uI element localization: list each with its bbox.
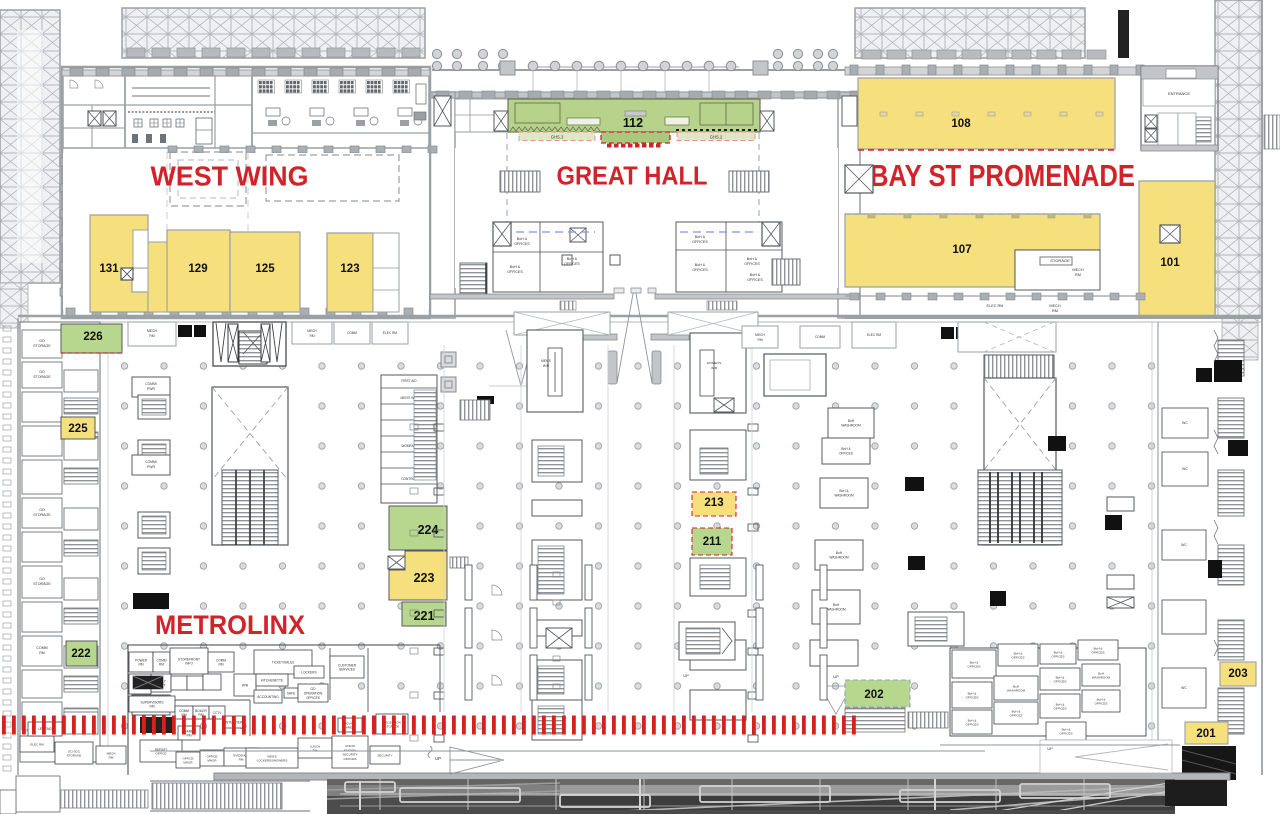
svg-text:LUNCH: LUNCH (310, 744, 320, 748)
svg-text:OFFICES: OFFICES (744, 262, 760, 266)
svg-text:WASHROOM: WASHROOM (841, 424, 861, 428)
svg-text:OFFICES: OFFICES (1091, 651, 1104, 655)
svg-text:WEST WING: WEST WING (151, 161, 309, 192)
svg-text:BoH &: BoH & (695, 263, 706, 267)
svg-text:MECH: MECH (755, 333, 765, 337)
svg-text:202: 202 (864, 689, 883, 701)
svg-text:MECH: MECH (1072, 268, 1083, 272)
svg-text:GREAT HALL: GREAT HALL (557, 162, 708, 190)
svg-text:STORAGE: STORAGE (1050, 258, 1070, 263)
svg-text:BoH &: BoH & (1062, 727, 1071, 731)
svg-text:ELEC RM: ELEC RM (30, 743, 44, 747)
svg-text:W/R: W/R (242, 684, 249, 688)
svg-text:LOCKERS/SHOWERS: LOCKERS/SHOWERS (257, 759, 288, 763)
svg-text:OFFICES: OFFICES (1059, 732, 1072, 736)
svg-text:BoH &: BoH & (510, 265, 521, 269)
svg-text:OFFICES: OFFICES (306, 696, 320, 700)
svg-text:ENTRANCE: ENTRANCE (1168, 91, 1190, 96)
svg-text:OFFICES: OFFICES (839, 452, 853, 456)
svg-text:COMM: COMM (815, 335, 825, 339)
svg-text:STORAGE: STORAGE (33, 344, 51, 348)
svg-text:UP: UP (833, 674, 839, 679)
svg-text:ELEC RM: ELEC RM (987, 304, 1004, 308)
svg-text:OFFICES: OFFICES (692, 268, 708, 272)
svg-text:OFFICES: OFFICES (1051, 655, 1064, 659)
svg-text:STORAGE: STORAGE (67, 754, 82, 758)
svg-text:WASHROOM: WASHROOM (834, 494, 854, 498)
svg-text:OFFICES: OFFICES (967, 665, 980, 669)
svg-text:203: 203 (1228, 668, 1247, 680)
svg-text:OFFICES: OFFICES (514, 242, 530, 246)
svg-text:GO: GO (39, 577, 45, 581)
svg-text:OFFICE: OFFICE (156, 752, 167, 756)
svg-text:BoH: BoH (836, 551, 843, 555)
svg-text:FARE: FARE (185, 729, 193, 733)
svg-text:225: 225 (68, 423, 88, 435)
svg-text:RM: RM (39, 651, 45, 655)
svg-text:RM: RM (758, 338, 763, 342)
svg-text:GHS.2: GHS.2 (710, 135, 723, 140)
svg-text:WC: WC (1181, 543, 1187, 547)
svg-text:WASHROOM: WASHROOM (829, 556, 849, 560)
svg-text:COMM: COMM (179, 709, 189, 713)
svg-text:RM: RM (109, 756, 114, 760)
svg-text:226: 226 (83, 331, 102, 343)
svg-text:STORAGE: STORAGE (33, 513, 51, 517)
svg-text:RM: RM (159, 663, 164, 667)
svg-text:ELEC RM: ELEC RM (867, 333, 882, 337)
svg-text:GO SOC: GO SOC (68, 749, 81, 753)
svg-text:COMM: COMM (36, 646, 47, 650)
svg-text:223: 223 (414, 571, 435, 585)
svg-text:GO: GO (39, 339, 45, 343)
svg-text:BoH &: BoH & (517, 237, 528, 241)
svg-text:MNGR: MNGR (183, 761, 193, 765)
svg-text:BoH &: BoH & (968, 691, 977, 695)
svg-text:ACCOUNTING: ACCOUNTING (257, 695, 279, 699)
svg-text:UP: UP (435, 756, 441, 761)
svg-text:BoH &: BoH & (1056, 675, 1065, 679)
svg-text:OFFICES: OFFICES (965, 696, 978, 700)
svg-text:OFFICES: OFFICES (1009, 714, 1022, 718)
svg-text:RM: RM (149, 334, 154, 338)
svg-text:BoH &: BoH & (839, 489, 849, 493)
svg-text:213: 213 (704, 497, 723, 509)
svg-text:OFFICES: OFFICES (1053, 680, 1066, 684)
svg-text:BoH: BoH (833, 603, 840, 607)
svg-text:COMM: COMM (347, 331, 357, 335)
svg-text:SUPERVISORS: SUPERVISORS (141, 700, 164, 704)
svg-text:PWR: PWR (147, 387, 155, 391)
svg-text:KITCHENETTE: KITCHENETTE (261, 679, 283, 683)
svg-text:RM: RM (1052, 309, 1058, 313)
svg-text:123: 123 (340, 263, 359, 275)
svg-text:CUSTOMER: CUSTOMER (338, 663, 357, 667)
svg-text:OFFICES: OFFICES (1053, 707, 1066, 711)
svg-text:BoH &: BoH & (1056, 702, 1065, 706)
svg-text:UP: UP (1047, 746, 1053, 751)
svg-text:RM: RM (139, 663, 144, 667)
svg-text:222: 222 (71, 648, 90, 660)
svg-text:OFFICES: OFFICES (343, 757, 356, 761)
svg-text:RM: RM (239, 758, 244, 762)
svg-text:BoH &: BoH & (1012, 709, 1021, 713)
svg-text:BAY ST PROMENADE: BAY ST PROMENADE (870, 159, 1135, 193)
svg-text:MEN'S: MEN'S (541, 359, 551, 363)
svg-text:OFFICES: OFFICES (1011, 656, 1024, 660)
svg-text:RM: RM (150, 705, 155, 709)
svg-text:OFFICE: OFFICE (207, 754, 218, 758)
svg-text:BoH &: BoH & (841, 447, 851, 451)
svg-text:GO: GO (39, 508, 45, 512)
svg-text:GHS.3: GHS.3 (551, 135, 564, 140)
svg-text:BoH &: BoH & (968, 718, 977, 722)
svg-text:SECURITY: SECURITY (342, 753, 357, 757)
svg-text:201: 201 (1196, 728, 1216, 740)
svg-text:107: 107 (952, 244, 971, 256)
svg-text:RM: RM (219, 663, 224, 667)
svg-text:BoH &: BoH & (1014, 651, 1023, 655)
svg-text:BOILER: BOILER (195, 709, 207, 713)
svg-text:112: 112 (623, 116, 643, 130)
svg-text:TICKET/SALES: TICKET/SALES (272, 661, 295, 665)
svg-text:108: 108 (951, 118, 971, 130)
svg-text:BoH: BoH (1098, 671, 1104, 675)
svg-text:129: 129 (188, 263, 207, 275)
svg-text:STOREFRONT: STOREFRONT (178, 657, 200, 661)
svg-text:OFFICE: OFFICE (183, 756, 194, 760)
svg-text:BoH &: BoH & (1097, 697, 1106, 701)
svg-text:OFFICES: OFFICES (965, 723, 978, 727)
svg-text:PWR: PWR (147, 465, 155, 469)
svg-text:STORAGE: STORAGE (33, 582, 51, 586)
svg-text:STATION: STATION (344, 748, 357, 752)
svg-text:WASHROOM: WASHROOM (826, 608, 846, 612)
svg-text:BoH &: BoH & (747, 257, 758, 261)
svg-text:FIRST AID: FIRST AID (401, 379, 417, 383)
svg-text:MECH: MECH (107, 751, 116, 755)
svg-text:COMM/: COMM/ (145, 382, 157, 386)
svg-text:RM: RM (1075, 273, 1081, 277)
svg-text:WC: WC (1182, 467, 1188, 471)
svg-text:CCTV: CCTV (213, 711, 223, 715)
svg-text:GO: GO (311, 687, 316, 691)
svg-text:W/R: W/R (543, 364, 550, 368)
svg-text:MECH: MECH (307, 329, 317, 333)
svg-text:WC: WC (1181, 686, 1187, 690)
svg-text:LOCKERS: LOCKERS (301, 671, 316, 675)
svg-text:OPERATION: OPERATION (304, 692, 323, 696)
svg-text:SERVICES: SERVICES (339, 668, 355, 672)
svg-text:125: 125 (255, 263, 275, 275)
svg-text:BoH &: BoH & (970, 660, 979, 664)
svg-text:BoH &: BoH & (750, 273, 761, 277)
svg-text:RM: RM (310, 334, 315, 338)
svg-text:RM: RM (187, 734, 192, 738)
svg-text:GO: GO (39, 370, 45, 374)
svg-text:BoH &: BoH & (1094, 646, 1103, 650)
svg-text:METROLINX: METROLINX (155, 610, 305, 640)
svg-text:WASHROOM: WASHROOM (1007, 689, 1026, 693)
svg-text:ELEC RM: ELEC RM (383, 331, 398, 335)
svg-text:UP: UP (683, 673, 689, 678)
svg-text:WASHROOM: WASHROOM (1092, 676, 1111, 680)
svg-text:SECURITY: SECURITY (377, 754, 392, 758)
svg-text:MEN'S: MEN'S (267, 754, 276, 758)
svg-text:BoH: BoH (1013, 684, 1019, 688)
svg-text:SAFE: SAFE (287, 692, 295, 696)
svg-text:OFFICES: OFFICES (692, 240, 708, 244)
svg-text:COMM: COMM (156, 658, 166, 662)
svg-text:211: 211 (703, 536, 722, 548)
svg-text:MNGR: MNGR (207, 759, 217, 763)
svg-text:BoH: BoH (848, 419, 855, 423)
svg-text:POWER: POWER (135, 658, 148, 662)
svg-text:INFO: INFO (185, 662, 193, 666)
svg-text:BoH &: BoH & (695, 235, 706, 239)
svg-text:BoH &: BoH & (1054, 650, 1063, 654)
svg-text:W/R: W/R (711, 366, 718, 370)
svg-text:UNION: UNION (345, 744, 355, 748)
svg-text:MECH: MECH (147, 329, 158, 333)
svg-text:OFFICES: OFFICES (747, 278, 763, 282)
svg-text:COMM: COMM (216, 658, 226, 662)
svg-text:MECH: MECH (1049, 304, 1060, 308)
svg-text:131: 131 (99, 263, 119, 275)
svg-text:OFFICES: OFFICES (507, 270, 523, 274)
svg-text:STORAGE: STORAGE (33, 375, 51, 379)
svg-text:OFFICES: OFFICES (1094, 702, 1107, 706)
svg-text:COMM/: COMM/ (145, 460, 157, 464)
svg-text:WC: WC (1182, 421, 1188, 425)
svg-text:WOMEN'S: WOMEN'S (707, 361, 721, 365)
svg-text:101: 101 (1160, 257, 1180, 269)
